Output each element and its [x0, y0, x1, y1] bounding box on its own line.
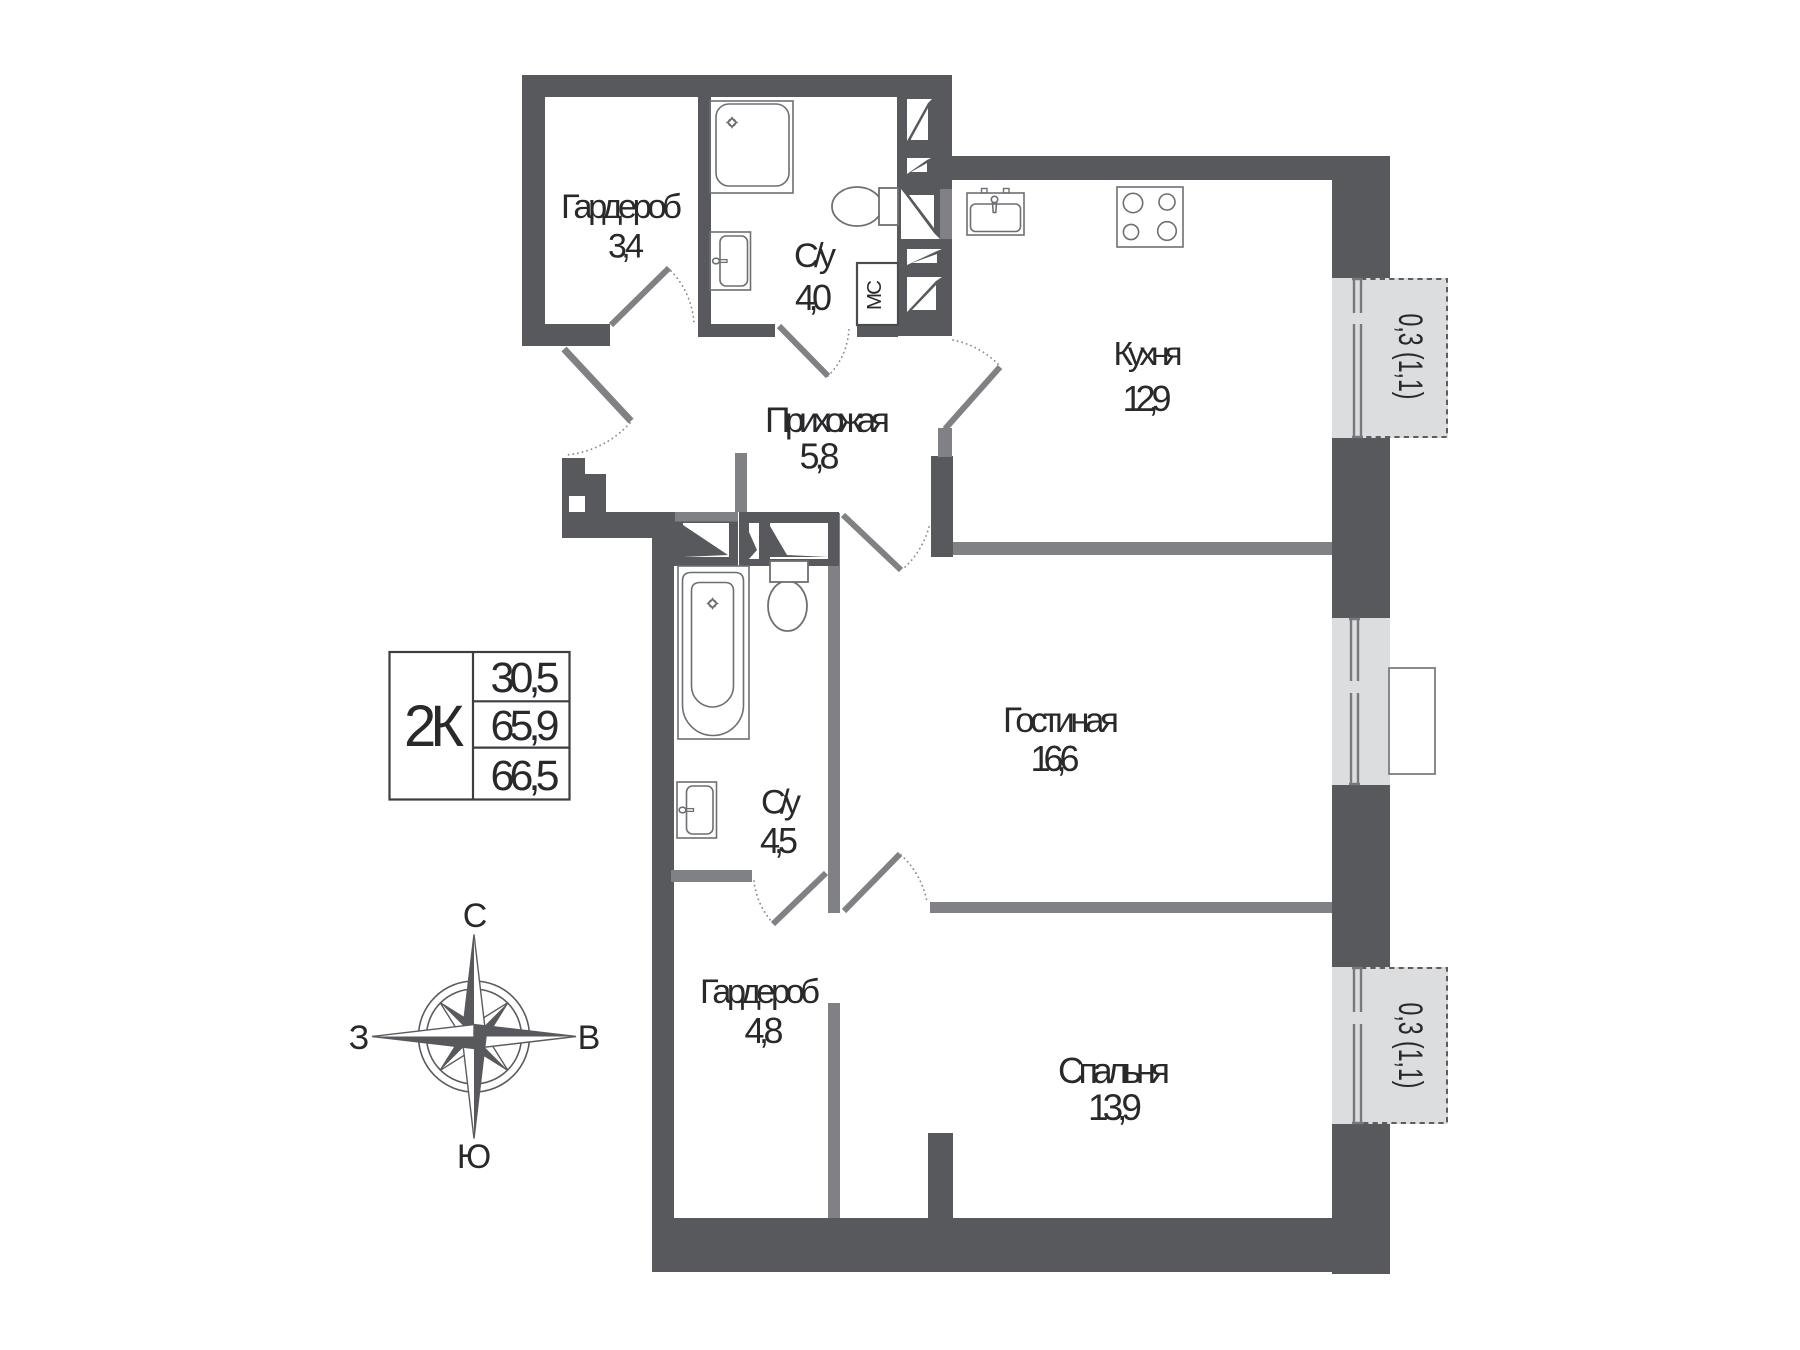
svg-text:66,5: 66,5: [491, 752, 560, 800]
svg-text:12,9: 12,9: [1123, 378, 1172, 419]
svg-text:В: В: [578, 1019, 601, 1057]
svg-text:Прихожая: Прихожая: [765, 400, 890, 440]
svg-text:Гардероб: Гардероб: [700, 973, 820, 1011]
svg-text:С/у: С/у: [761, 784, 802, 822]
svg-text:16,6: 16,6: [1031, 738, 1080, 779]
svg-text:5,8: 5,8: [800, 436, 840, 477]
svg-text:Кухня: Кухня: [1114, 336, 1183, 373]
svg-text:4,8: 4,8: [745, 1010, 784, 1051]
svg-text:С/у: С/у: [794, 237, 837, 275]
svg-text:2К: 2К: [404, 694, 464, 759]
svg-text:0,3 (1,1): 0,3 (1,1): [1391, 314, 1429, 400]
svg-text:3,4: 3,4: [608, 228, 644, 266]
svg-text:Гостиная: Гостиная: [1003, 701, 1119, 740]
svg-text:0,3 (1,1): 0,3 (1,1): [1391, 1003, 1429, 1089]
svg-text:Ю: Ю: [457, 1138, 491, 1176]
svg-text:4,5: 4,5: [760, 820, 798, 861]
svg-text:Спальня: Спальня: [1058, 1050, 1170, 1091]
svg-text:МС: МС: [863, 280, 886, 310]
svg-text:4,0: 4,0: [795, 277, 832, 318]
svg-text:65,9: 65,9: [491, 702, 560, 750]
svg-text:Гардероб: Гардероб: [561, 188, 682, 226]
svg-text:С: С: [463, 897, 488, 935]
svg-text:30,5: 30,5: [491, 654, 560, 702]
svg-text:13,9: 13,9: [1088, 1087, 1142, 1128]
svg-text:З: З: [349, 1019, 370, 1057]
